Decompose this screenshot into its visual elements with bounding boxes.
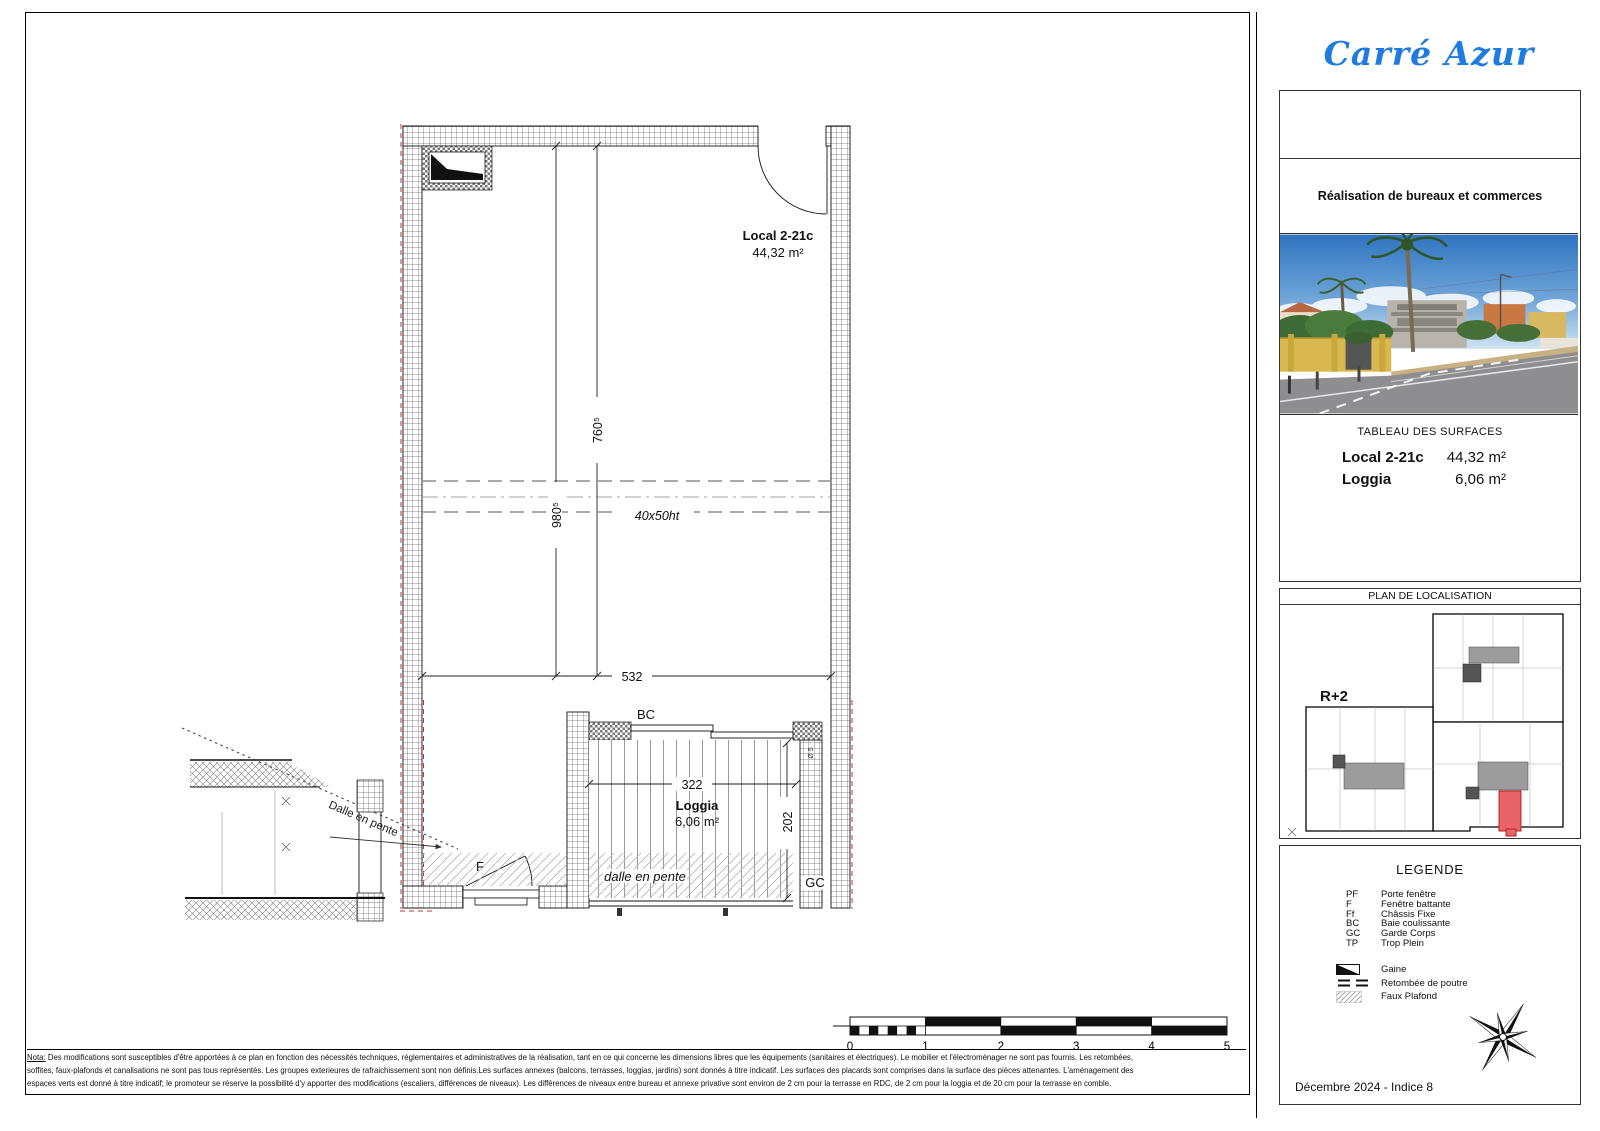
gc-label: GC <box>805 875 825 890</box>
loggia-note: Ø 5 <box>808 747 815 758</box>
notes-line-1: Nota: Des modifications sont susceptible… <box>27 1051 1246 1064</box>
scale-bar: 0 1 2 3 4 5 <box>833 1017 1230 1053</box>
surface-row: Local 2-21c 44,32 m² <box>1342 447 1506 469</box>
legend-symbol-label: Faux Plafond <box>1381 991 1437 1002</box>
beam-drop-symbol-icon <box>1336 978 1374 988</box>
surface-row-value: 6,06 m² <box>1455 469 1506 491</box>
dim-980: 980⁵ <box>550 502 564 528</box>
surface-row-value: 44,32 m² <box>1447 447 1506 469</box>
legend-label: Trop Plein <box>1381 939 1424 949</box>
highlighted-unit <box>1499 791 1521 836</box>
legend-symbol-row: Gaine <box>1336 963 1580 977</box>
nota-label: Nota: <box>27 1053 46 1062</box>
notes-line-3: espaces verts est donné à titre indicati… <box>27 1077 1246 1090</box>
legend-symbol-label: Gaine <box>1381 964 1406 975</box>
beam-drop <box>422 481 831 512</box>
surface-row-label: Local 2-21c <box>1342 447 1424 469</box>
unit-floor-plan: 40x50ht 980⁵ 760⁵ 532 322 202 Ø 5 Local … <box>400 124 852 916</box>
dim-532: 532 <box>622 670 643 684</box>
gaine-symbol-icon <box>1336 964 1374 975</box>
site-photo <box>1280 233 1578 415</box>
compass-rose-icon <box>1458 992 1548 1082</box>
project-tagline: Réalisation de bureaux et commerces <box>1280 159 1580 233</box>
notes-block: Nota: Des modifications sont susceptible… <box>27 1049 1246 1093</box>
localisation-header: PLAN DE LOCALISATION <box>1279 588 1581 605</box>
yellow-wall <box>1280 332 1391 372</box>
f-label: F <box>476 859 484 874</box>
gaine-duct <box>422 146 492 190</box>
issue-date: Décembre 2024 - Indice 8 <box>1295 1080 1433 1094</box>
guard-rail <box>589 901 793 916</box>
localisation-plan: R+2 <box>1279 604 1581 839</box>
unit-area-label: 44,32 m² <box>752 245 804 260</box>
site-photo-image <box>1280 234 1578 414</box>
notes-line-2: soffites, faux-plafonds et canalisations… <box>27 1064 1246 1077</box>
dalle-en-pente-label: dalle en pente <box>604 869 686 884</box>
bc-label: BC <box>637 707 655 722</box>
legend-title: LEGENDE <box>1280 862 1580 877</box>
entrance-door <box>758 146 827 214</box>
legend-abbr: TP <box>1346 939 1381 949</box>
title-block-empty-row <box>1280 91 1580 159</box>
localisation-plan-map: R+2 <box>1280 604 1580 838</box>
legend-symbol-row: Retombée de poutre <box>1336 976 1580 990</box>
floor-label: R+2 <box>1320 688 1348 705</box>
dim-322: 322 <box>682 778 703 792</box>
legend-symbol-label: Retombée de poutre <box>1381 978 1468 989</box>
false-ceiling-symbol-icon <box>1336 991 1374 1003</box>
north-mark <box>1288 828 1296 836</box>
legend-row: TPTrop Plein <box>1346 939 1580 949</box>
surfaces-table: Local 2-21c 44,32 m² Loggia 6,06 m² <box>1342 447 1506 491</box>
unit-name-label: Local 2-21c <box>743 228 814 243</box>
loggia-area-label: 6,06 m² <box>675 814 720 829</box>
sliding-bay-bc <box>631 725 793 738</box>
legend-abbreviations: PFPorte fenêtre FFenêtre battante FfChâs… <box>1346 890 1580 949</box>
surfaces-table-title: TABLEAU DES SURFACES <box>1280 426 1580 438</box>
loggia-name-label: Loggia <box>676 798 719 813</box>
title-block: Réalisation de bureaux et commerces <box>1279 90 1581 582</box>
surface-row: Loggia 6,06 m² <box>1342 469 1506 491</box>
brand-logo: Carré Azur <box>1279 34 1579 73</box>
beam-size-label: 40x50ht <box>635 509 680 523</box>
dim-760: 760⁵ <box>591 417 605 443</box>
surface-row-label: Loggia <box>1342 469 1391 491</box>
dim-202: 202 <box>781 812 795 833</box>
